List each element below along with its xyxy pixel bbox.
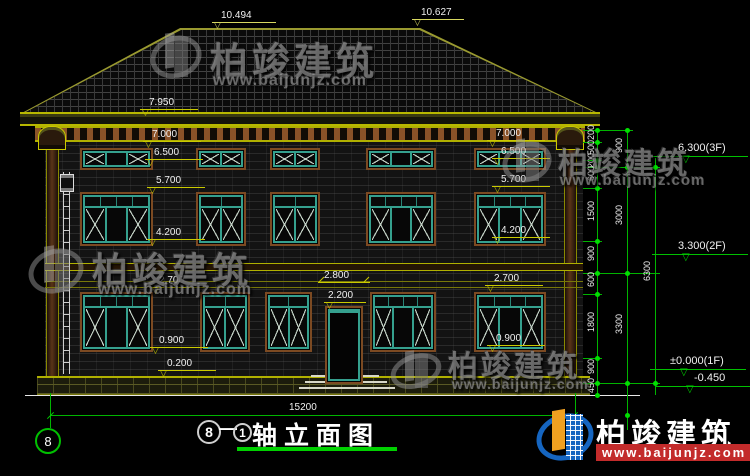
title-bubble-right: 1 [233,423,252,442]
level-marker: 5.700 [492,174,550,185]
ground-line [25,395,640,396]
window-1f [80,292,153,352]
roof-fascia [20,112,600,126]
company-logo-url: www.baijunjz.com [596,444,750,461]
chain-dim: 900 [614,138,624,153]
transom-window [196,148,246,170]
ridge-level-left-value: 10.494 [212,10,276,21]
floor-elevation: 6.300(3F) [652,143,748,154]
level-marker: 2.700 [485,273,543,284]
chain-dim: 600 [586,272,596,287]
window-2f [270,192,320,246]
level-marker: 7.000 [487,128,545,139]
door-lintel-dim: 2.800 [318,270,370,281]
window-2f [80,192,153,246]
downspout-hopper [60,174,74,192]
eave-level-value: 7.950 [140,97,198,108]
transom-window [80,148,153,170]
eave-level: 7.950 [140,97,198,108]
total-width-dim: 15200 [289,402,317,413]
window-1f [370,292,436,352]
level-marker: 6.500 [145,147,203,158]
company-logo [536,406,594,468]
floor-elevation: 3.300(2F) [652,241,748,252]
transom-window [366,148,436,170]
chain-dim: 3300 [614,314,624,334]
chain-dim: 1800 [586,312,596,332]
floor-elevation: -0.450 [656,373,750,384]
door-step [299,387,395,389]
level-marker: 2.700 [150,275,208,286]
roof-tiles [22,30,598,114]
chain-dim: 900 [586,246,596,261]
level-marker: 4.200 [492,225,550,236]
level-marker: 6.500 [492,146,550,157]
stone-plinth [37,376,590,395]
ridge-level-right: 10.627 [412,7,464,18]
level-marker: 0.900 [150,335,208,346]
ridge-level-right-value: 10.627 [412,7,464,18]
transom-window [270,148,320,170]
downspout-pipe [63,172,70,374]
chain-dim: 450 [586,378,596,393]
level-marker: 4.200 [147,227,205,238]
chain-dim: 600 [586,166,596,181]
chain-dim: 900 [586,359,596,374]
door-top-level: 2.200 [324,290,366,301]
window-1f [265,292,312,352]
ridge-level-left: 10.494 [212,10,276,21]
roof [20,28,600,114]
floor-band [45,263,583,271]
axis-bubble-8: 8 [35,428,61,454]
level-marker: 0.900 [487,333,545,344]
level-marker: 7.000 [143,129,201,140]
level-marker: 5.700 [147,175,205,186]
level-marker: 0.200 [158,358,216,369]
title-bubble-left: 8 [197,420,221,444]
right-pilaster-capital [556,126,584,150]
chain-dim: 3000 [614,205,624,225]
left-pilaster-capital [38,126,66,150]
chain-dim: 200 [586,125,596,140]
floor-elevation: ±0.000(1F) [650,356,746,367]
title-underline [237,447,397,451]
cad-elevation-drawing: 10.494 10.627 7.950 [0,0,750,476]
window-2f [366,192,436,246]
chain-dim: 1500 [586,201,596,221]
chain-dim: 6300 [642,261,652,281]
entry-door [325,306,363,384]
